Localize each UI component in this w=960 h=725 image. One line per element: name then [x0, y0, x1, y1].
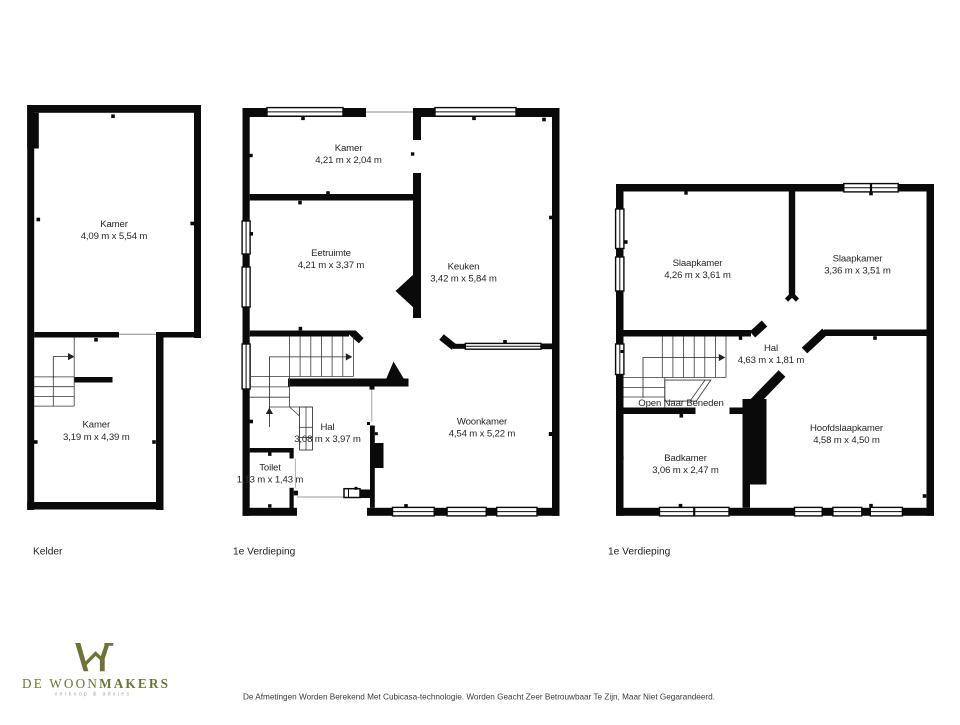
svg-text:Slaapkamer: Slaapkamer — [673, 258, 724, 269]
svg-text:De Afmetingen Worden Berekend: De Afmetingen Worden Berekend Met Cubica… — [243, 693, 715, 702]
svg-text:3,36 m x 3,51 m: 3,36 m x 3,51 m — [824, 266, 891, 277]
svg-text:Hal: Hal — [321, 422, 335, 433]
svg-text:3,42 m x 5,84 m: 3,42 m x 5,84 m — [430, 274, 497, 285]
svg-text:DE WOONMAKERS: DE WOONMAKERS — [22, 676, 170, 691]
svg-text:4,58 m x 4,50 m: 4,58 m x 4,50 m — [813, 435, 880, 446]
svg-text:1,13 m x 1,43 m: 1,13 m x 1,43 m — [237, 475, 304, 486]
svg-text:4,21 m x 3,37 m: 4,21 m x 3,37 m — [298, 260, 365, 271]
svg-text:Kamer: Kamer — [335, 143, 363, 154]
svg-text:Kelder: Kelder — [33, 547, 63, 558]
svg-text:verkoop & advies: verkoop & advies — [55, 692, 132, 698]
svg-text:Kamer: Kamer — [100, 219, 128, 230]
svg-text:Keuken: Keuken — [448, 262, 480, 273]
svg-text:Badkamer: Badkamer — [664, 453, 707, 464]
svg-text:1e Verdieping: 1e Verdieping — [233, 547, 296, 558]
svg-text:Open Naar Beneden: Open Naar Beneden — [638, 398, 723, 409]
svg-text:Hoofdslaapkamer: Hoofdslaapkamer — [810, 423, 884, 434]
svg-text:4,63 m x 1,81 m: 4,63 m x 1,81 m — [738, 355, 805, 366]
svg-text:4,21 m x 2,04 m: 4,21 m x 2,04 m — [315, 155, 382, 166]
svg-text:3,19 m x 4,39 m: 3,19 m x 4,39 m — [63, 432, 130, 443]
svg-text:4,54 m x 5,22 m: 4,54 m x 5,22 m — [449, 429, 516, 440]
svg-text:4,26 m x 3,61 m: 4,26 m x 3,61 m — [664, 270, 731, 281]
svg-text:Eetruimte: Eetruimte — [311, 248, 351, 259]
svg-text:Woonkamer: Woonkamer — [457, 417, 508, 428]
svg-text:Kamer: Kamer — [83, 420, 111, 431]
svg-text:4,09 m x 5,54 m: 4,09 m x 5,54 m — [81, 231, 148, 242]
svg-text:3,08 m x 3,97 m: 3,08 m x 3,97 m — [294, 434, 361, 445]
svg-text:Toilet: Toilet — [259, 463, 281, 474]
svg-text:3,06 m x 2,47 m: 3,06 m x 2,47 m — [652, 465, 719, 476]
svg-text:Hal: Hal — [764, 343, 778, 354]
svg-text:Slaapkamer: Slaapkamer — [833, 254, 884, 265]
svg-text:1e Verdieping: 1e Verdieping — [608, 547, 671, 558]
